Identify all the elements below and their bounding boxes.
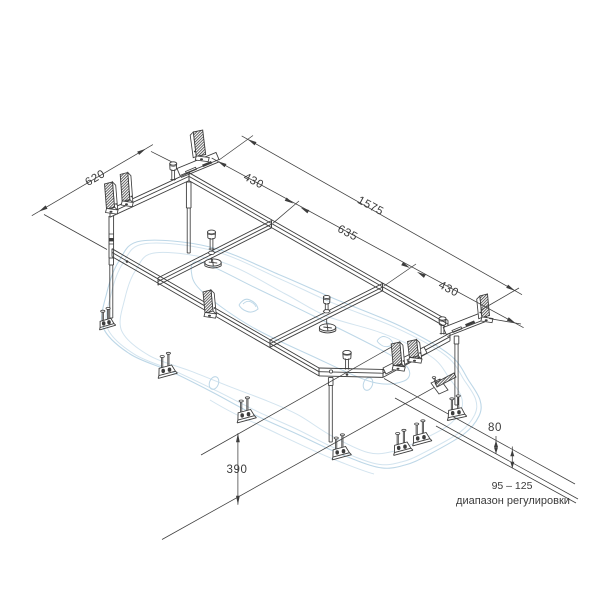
svg-text:80: 80 [488, 422, 502, 434]
svg-text:390: 390 [227, 464, 248, 476]
svg-text:95 – 125: 95 – 125 [492, 480, 533, 492]
svg-text:диапазон регулировки: диапазон регулировки [456, 495, 570, 507]
